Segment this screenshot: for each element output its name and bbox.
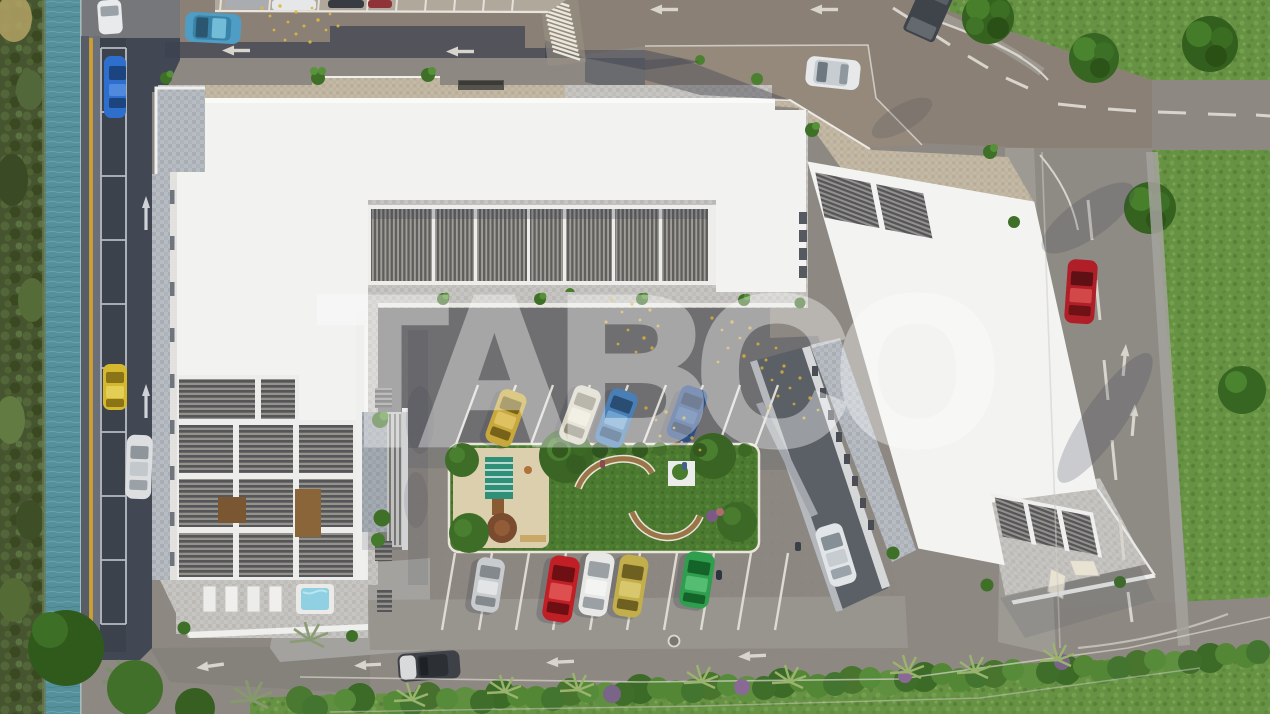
svg-text:TABCO: TABCO xyxy=(318,252,991,489)
